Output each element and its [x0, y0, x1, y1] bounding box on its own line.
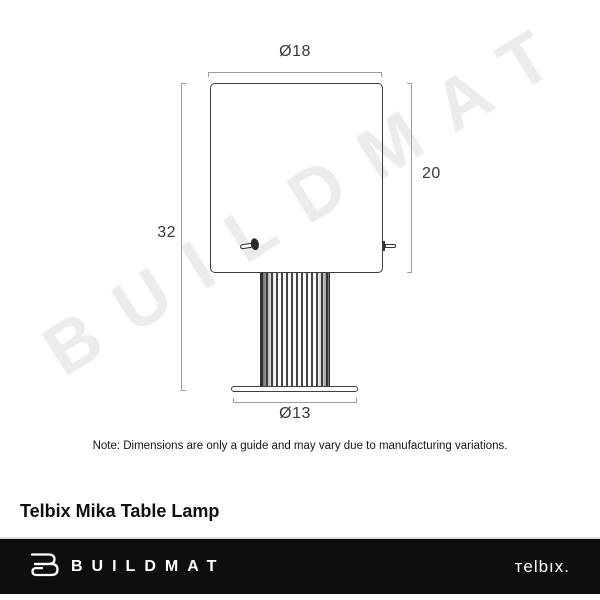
dimensions-disclaimer-note: Note: Dimensions are only a guide and ma… — [0, 440, 600, 452]
side-switch-peg-stem — [385, 244, 396, 249]
toggle-switch-head — [250, 238, 260, 251]
product-dimension-page: BUILDMAT Ø18 20 32 Ø13 Note: Dimensions … — [0, 0, 600, 600]
dimension-label-shade-height: 20 — [422, 165, 441, 183]
footer-bar: BUILDMAT тelbıx. — [0, 537, 600, 594]
dimension-bracket-base-diameter — [233, 398, 357, 403]
product-title: Telbix Mika Table Lamp — [20, 501, 219, 522]
side-switch-peg — [383, 241, 398, 251]
buildmat-wordmark: BUILDMAT — [71, 558, 225, 576]
buildmat-brand-lockup: BUILDMAT — [30, 551, 225, 583]
dimension-label-shade-diameter: Ø18 — [208, 43, 382, 61]
dimension-bracket-shade-height — [407, 83, 412, 273]
dimension-label-base-diameter: Ø13 — [233, 405, 357, 423]
telbix-logo: тelbıx. — [515, 557, 570, 577]
lamp-shade-outline — [210, 83, 383, 273]
dimension-bracket-total-height — [181, 83, 186, 391]
fluted-column — [260, 273, 330, 387]
base-plate — [231, 386, 358, 392]
buildmat-folded-linen-icon — [30, 551, 60, 583]
dimension-label-total-height: 32 — [146, 224, 176, 242]
dimension-bracket-shade-diameter — [208, 72, 382, 77]
